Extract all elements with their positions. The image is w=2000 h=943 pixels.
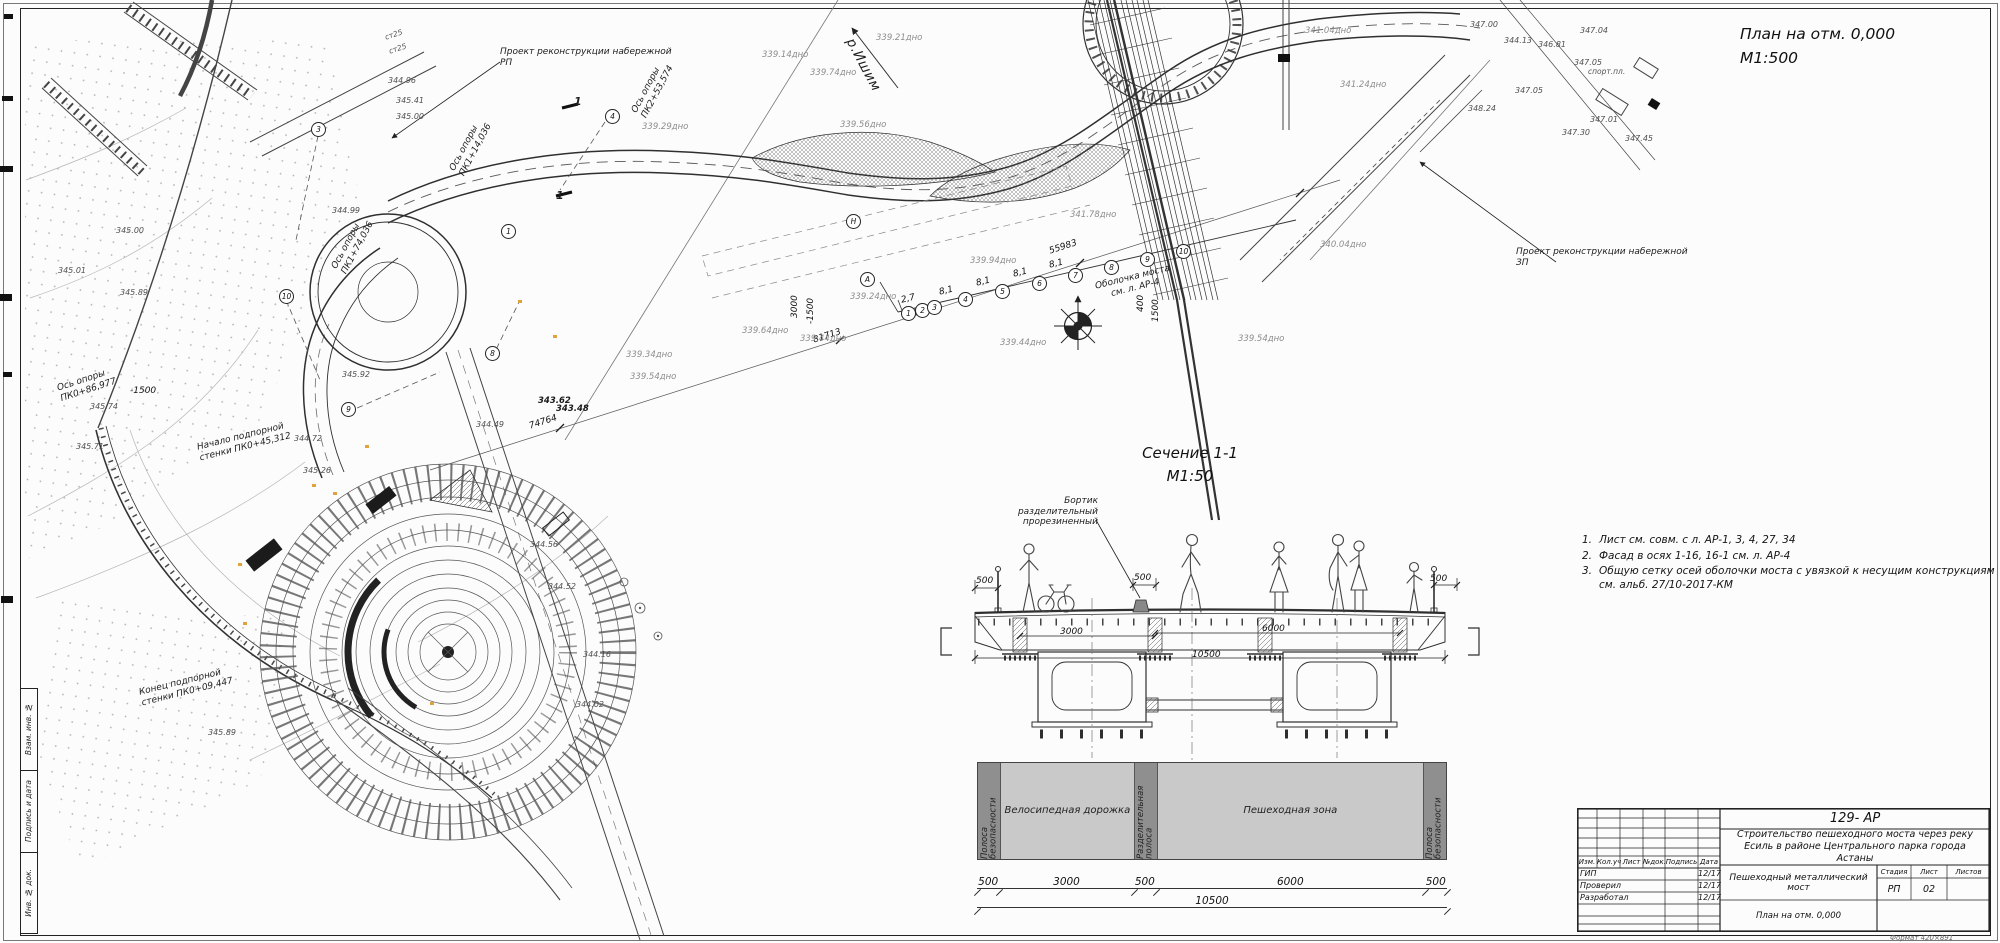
format-note: Формат 420×891 [1890,935,1953,942]
plan-label: 339.34дно [626,350,672,360]
note-item: 1. Лист см. совм. с л. АР-1, 3, 4, 27, 3… [1582,534,2000,548]
map-edge-markers [0,14,13,603]
right-side-roads [1240,0,1660,282]
trees [620,578,662,640]
plan-label: 339.29дно [642,122,688,132]
plan-label: 345.26 [303,466,331,475]
plan-label: 400 [1136,295,1147,312]
axis-circle: Н [846,214,861,229]
plan-label: 344.16 [583,650,611,659]
carriageway-zoning-diagram: Полоса безопасности Велосипедная дорожка… [977,762,1447,908]
plan-label: 345.00 [396,112,424,121]
topo-vegetation [25,40,360,870]
plan-label: 344.13 [1504,36,1532,45]
plan-label: Проект реконструкции набережной РП [500,47,672,68]
strip-cell-vzam: Взам. инв. № [20,688,38,770]
plan-label: 348.24 [1468,104,1496,113]
axis-circle: 8 [1104,260,1119,275]
plan-label: 347.04 [1580,26,1608,35]
section-cut-marks [556,104,578,196]
plan-label: 344.99 [332,206,360,215]
axis-circle: 4 [958,292,973,307]
plan-label: 344.96 [388,76,416,85]
axis-circle: 10 [1176,244,1191,259]
leader-lines [392,62,1556,598]
axis-circle: 6 [1032,276,1047,291]
plan-label: 10500 [1192,650,1221,661]
note-item: 3. Общую сетку осей оболочки моста с увя… [1582,565,2000,592]
plan-label: 339.14дно [762,50,808,60]
plan-label: 345.71 [76,442,104,451]
plan-label: 339.54дно [630,372,676,382]
roundabout [1083,0,1243,104]
plan-label: 347.01 [1590,115,1618,124]
plan-label: 345.41 [396,96,424,105]
plan-label: 1500 [1151,299,1162,322]
axis-circle: 9 [1140,252,1155,267]
compass-rose-icon [1054,296,1102,350]
strip-cell-podpis: Подпись и дата [20,770,38,852]
plan-label: Бортик разделительный прорезиненный [990,496,1098,528]
plan-label: 343.48 [556,404,589,414]
plan-label: 6000 [1262,624,1285,635]
plan-label: -1500 [130,386,156,397]
plan-label: 339.74дно [810,68,856,78]
zone-safety-left: Полоса безопасности [978,763,1001,859]
plan-label: 3000 [1060,627,1083,638]
plan-label: Проект реконструкции набережной ЗП [1516,247,1688,268]
plaza-amphitheatre [260,464,636,840]
plan-label: 341.04дно [1305,26,1351,36]
zone-safety-right: Полоса безопасности [1424,763,1446,859]
axis-circle: 3 [927,300,942,315]
bridge-shell-mesh [752,132,1130,202]
axis-circle: 4 [605,109,620,124]
plan-title-text: План на отм. 0,000 [1740,26,1895,43]
plan-label: спорт.пл. [1588,68,1625,77]
plan-label: 341.24дно [1340,80,1386,90]
plan-label: 345.01 [58,266,86,275]
note-text: Фасад в осях 1-16, 16-1 см. л. АР-4 [1599,550,2000,564]
axis-circle: 7 [1068,268,1083,283]
axis-circle: 8 [485,346,500,361]
axis-circle: 1 [901,306,916,321]
drawing-sheet: План на отм. 0,000 М1:500 Сечение 1-1 М1… [0,0,2000,943]
plan-label: 339.21дно [876,33,922,43]
title-block: 129- АР Строительство пешеходного моста … [1577,808,1990,932]
plan-label: 339.54дно [1238,334,1284,344]
section-scale: М1:50 [1102,468,1278,485]
plan-label: 345.89 [208,728,236,737]
plan-label: 341.78дно [1070,210,1116,220]
zone-bike-path: Велосипедная дорожка [1001,763,1135,859]
plan-label: 345.92 [342,370,370,379]
plan-label: 347.00 [1470,20,1498,29]
plan-label: 345.74 [90,402,118,411]
notes-list: 1. Лист см. совм. с л. АР-1, 3, 4, 27, 3… [1582,534,2000,595]
note-number: 2. [1582,550,1599,564]
plan-label: 3000 [790,295,801,318]
section-title-text: Сечение 1-1 [1102,445,1278,462]
plan-label: 339.56дно [840,120,886,130]
plan-label: 344.72 [294,434,322,443]
zone-bar: Полоса безопасности Велосипедная дорожка… [977,762,1447,860]
axis-circle: 10 [279,289,294,304]
river-bank [565,0,1490,440]
plan-label: 346.81 [1538,40,1566,49]
bridge-deck [388,13,1480,223]
axis-circle: 9 [341,402,356,417]
plan-label: 500 [1134,573,1151,584]
zone-pedestrian: Пешеходная зона [1158,763,1424,859]
plan-label: 339.64дно [742,326,788,336]
frame-side-strip: Взам. инв. № Подпись и дата Инв. № док. [20,688,38,934]
plan-label: -1500 [806,298,817,324]
zone-total-dimension: 10500 [977,891,1447,908]
plan-label: 347.05 [1515,86,1543,95]
plan-label: 1 [574,96,582,109]
note-number: 1. [1582,534,1599,548]
plan-label: 344.02 [576,700,604,709]
axis-circle: А [860,272,875,287]
plan-label: 344.52 [548,582,576,591]
axis-circle: 3 [311,122,326,137]
note-text: Лист см. совм. с л. АР-1, 3, 4, 27, 34 [1599,534,2000,548]
plan-label: 339.44дно [1000,338,1046,348]
plan-label: 500 [1430,574,1447,585]
section-1-1 [941,535,1479,763]
zone-divider: Разделительная полоса [1135,763,1158,859]
strip-cell-inv: Инв. № док. [20,852,38,934]
note-number: 3. [1582,565,1599,592]
note-text: Общую сетку осей оболочки моста с увязко… [1599,565,2000,592]
section-title: Сечение 1-1 М1:50 [1102,445,1278,484]
axis-circle: 1 [501,224,516,239]
plan-label: 340.04дно [1320,240,1366,250]
plan-label: 347.45 [1625,134,1653,143]
plan-label: 339.24дно [850,292,896,302]
note-item: 2. Фасад в осях 1-16, 16-1 см. л. АР-4 [1582,550,2000,564]
plan-scale: М1:500 [1740,50,1895,67]
plan-title: План на отм. 0,000 М1:500 [1740,26,1895,67]
people-silhouettes [1020,535,1422,613]
plan-label: 344.56 [530,540,558,549]
zone-dimensions: 500 3000 500 6000 500 [977,874,1447,889]
axis-circle: 5 [995,284,1010,299]
plan-label: 345.00 [116,226,144,235]
title-block-grid [1577,808,1990,932]
plan-label: 344.49 [476,420,504,429]
plan-label: 347.30 [1562,128,1590,137]
plan-label: 339.44дно [800,334,846,344]
plan-label: 1 [556,190,564,203]
plan-label: 347.05 [1574,58,1602,67]
plan-label: 500 [976,576,993,587]
plan-label: 345.89 [120,288,148,297]
plan-label: 339.94дно [970,256,1016,266]
